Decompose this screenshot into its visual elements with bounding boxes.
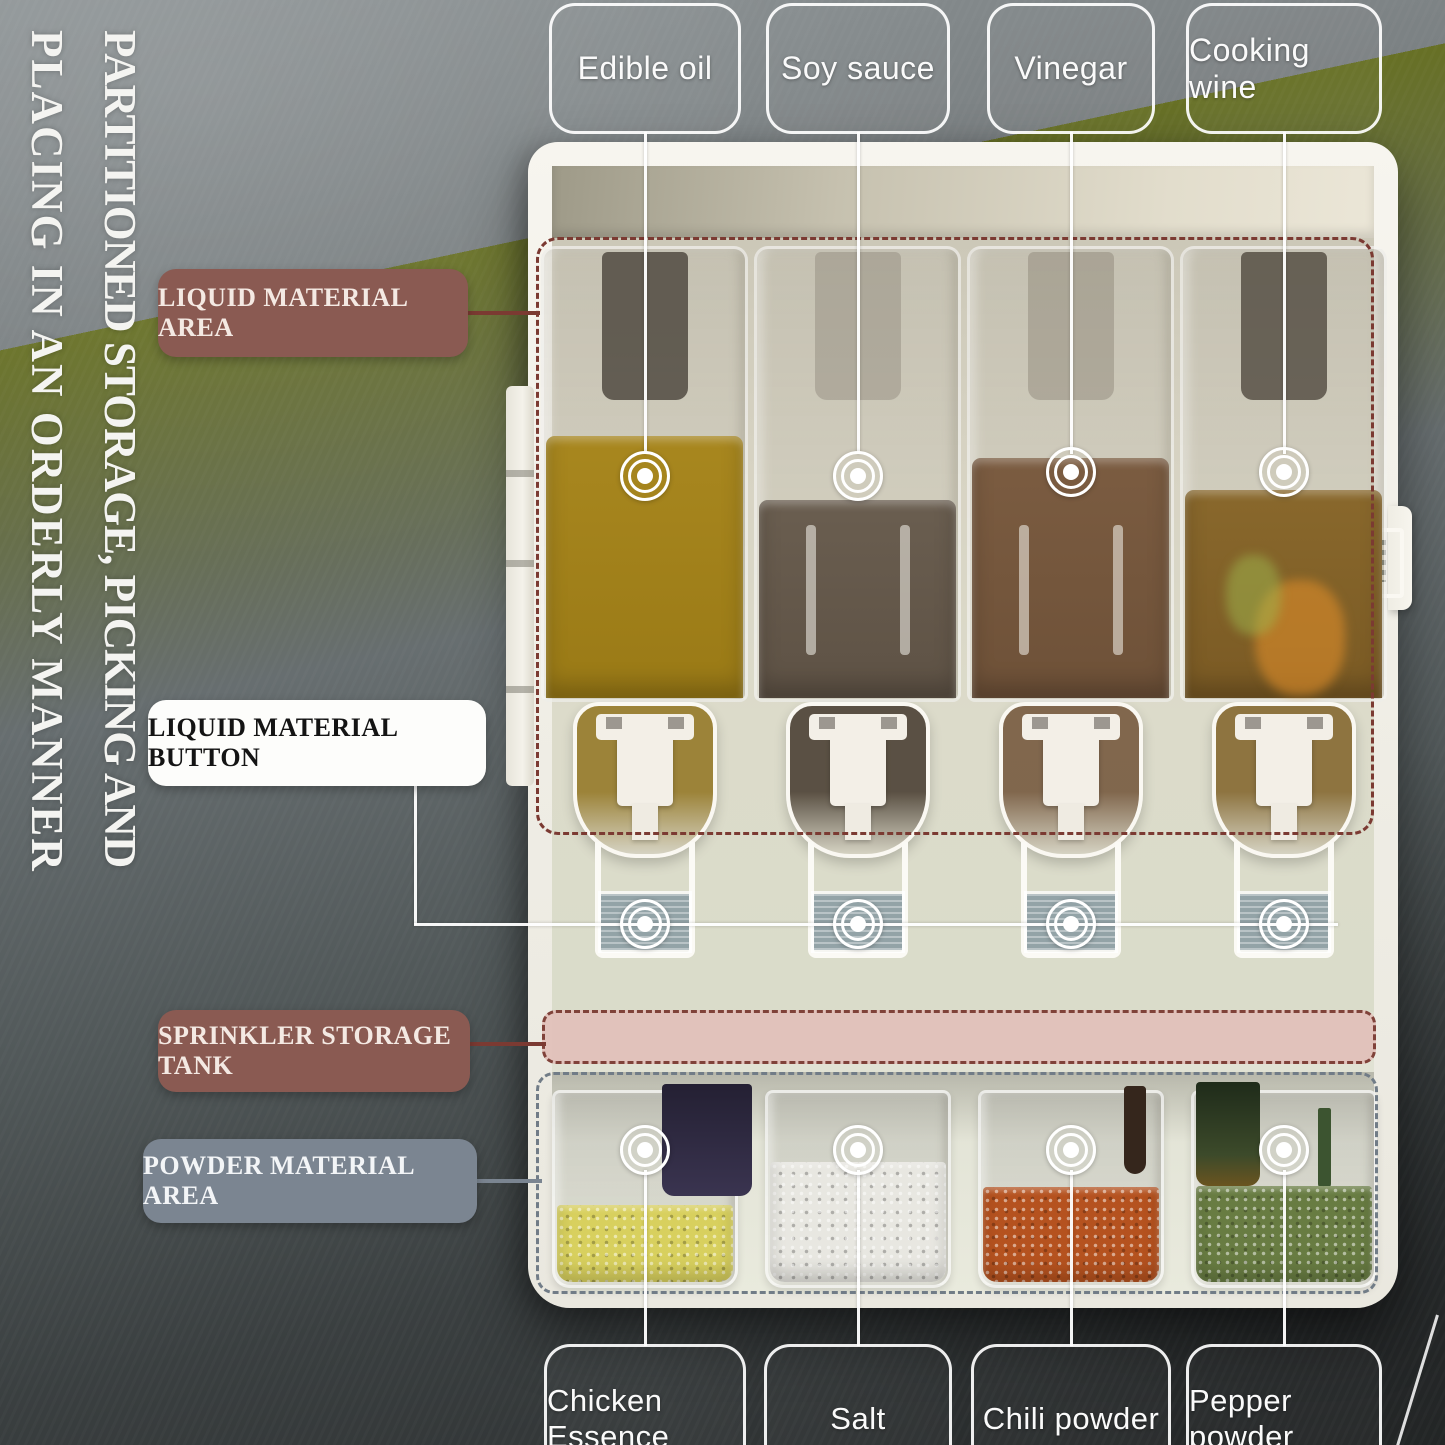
target-marker-icon xyxy=(620,451,670,501)
connector-line xyxy=(414,786,417,925)
target-marker-icon xyxy=(1259,899,1309,949)
callout-sprinkler-storage-tank: SPRINKLER STORAGE TANK xyxy=(158,1010,470,1092)
callout-text: LIQUID MATERIAL BUTTON xyxy=(148,713,486,773)
leader-line-powder-area xyxy=(474,1179,542,1183)
rail-notch xyxy=(506,470,534,477)
label-text: Vinegar xyxy=(1014,50,1127,87)
connector-line xyxy=(644,1170,647,1346)
target-marker-icon xyxy=(1046,1125,1096,1175)
label-text: Pepper powder xyxy=(1189,1383,1379,1445)
label-text: Chicken Essence xyxy=(547,1383,743,1445)
powder-area-dashed-border xyxy=(536,1072,1378,1294)
callout-text: SPRINKLER STORAGE TANK xyxy=(158,1021,470,1081)
label-text: Chili powder xyxy=(983,1401,1160,1437)
connector-line xyxy=(1070,1170,1073,1346)
label-text: Salt xyxy=(830,1401,885,1437)
target-marker-icon xyxy=(833,1125,883,1175)
target-marker-icon xyxy=(620,899,670,949)
liquid-area-dashed-border xyxy=(536,237,1374,835)
leader-line-sprinkler-tank xyxy=(466,1042,546,1046)
target-marker-icon xyxy=(1046,899,1096,949)
label-text: Edible oil xyxy=(578,50,713,87)
sprinkler-storage-tank-strip xyxy=(542,1010,1376,1064)
callout-powder-material-area: POWDER MATERIAL AREA xyxy=(143,1139,477,1223)
label-text: Soy sauce xyxy=(781,50,935,87)
target-marker-icon xyxy=(833,899,883,949)
callout-liquid-material-area: LIQUID MATERIAL AREA xyxy=(158,269,468,357)
rail-notch xyxy=(506,686,534,693)
label-edible-oil: Edible oil xyxy=(549,3,741,134)
label-pepper-powder: Pepper powder xyxy=(1186,1344,1382,1445)
target-marker-icon xyxy=(1259,1125,1309,1175)
target-marker-icon xyxy=(1046,447,1096,497)
callout-text: LIQUID MATERIAL AREA xyxy=(158,283,468,343)
side-title-line-1: PARTITIONED STORAGE, PICKING AND xyxy=(83,30,156,980)
label-chicken-essence: Chicken Essence xyxy=(544,1344,746,1445)
dispenser-top-shelf xyxy=(552,166,1374,238)
connector-line xyxy=(1283,1170,1286,1346)
wall-mount-rail xyxy=(506,386,534,786)
connector-line xyxy=(857,132,860,454)
label-cooking-wine: Cooking wine xyxy=(1186,3,1382,134)
target-marker-icon xyxy=(833,451,883,501)
target-marker-icon xyxy=(1259,447,1309,497)
label-salt: Salt xyxy=(764,1344,952,1445)
side-title-line-2: PLACING IN AN ORDERLY MANNER xyxy=(10,30,83,980)
label-chili-powder: Chili powder xyxy=(971,1344,1171,1445)
side-title: PARTITIONED STORAGE, PICKING AND PLACING… xyxy=(6,30,156,980)
target-marker-icon xyxy=(620,1125,670,1175)
label-text: Cooking wine xyxy=(1189,32,1379,106)
product-annotation-image: PARTITIONED STORAGE, PICKING AND PLACING… xyxy=(0,0,1445,1445)
leader-line-liquid-area xyxy=(466,311,540,315)
label-vinegar: Vinegar xyxy=(987,3,1155,134)
label-soy-sauce: Soy sauce xyxy=(766,3,950,134)
connector-line xyxy=(1070,132,1073,454)
rail-notch xyxy=(506,560,534,567)
connector-line xyxy=(857,1170,860,1346)
callout-liquid-material-button: LIQUID MATERIAL BUTTON xyxy=(148,700,486,786)
connector-line xyxy=(1283,132,1286,454)
connector-line xyxy=(644,132,647,454)
callout-text: POWDER MATERIAL AREA xyxy=(143,1151,477,1211)
